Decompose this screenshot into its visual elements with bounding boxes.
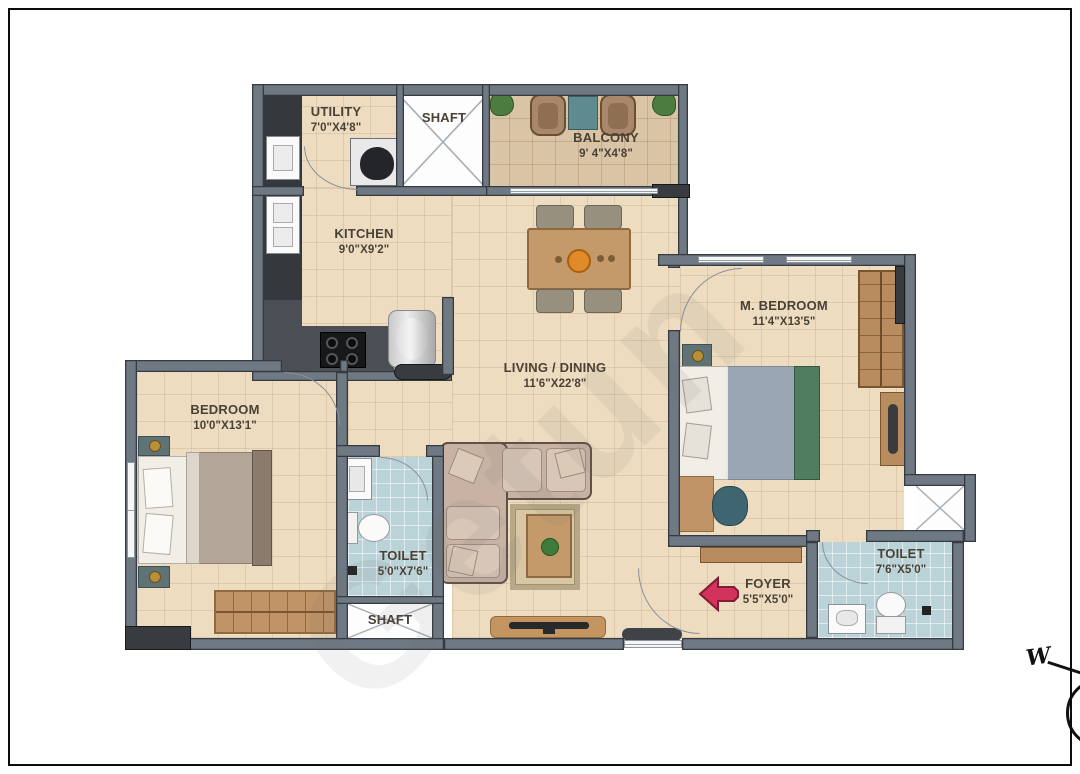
room-name: M. BEDROOM <box>740 298 828 315</box>
wall-segment <box>678 84 688 196</box>
main-door-threshold <box>624 640 682 648</box>
kitchen-sink-icon <box>266 196 300 254</box>
sink-basin <box>273 227 293 247</box>
toilet1-wc-bowl <box>358 514 390 542</box>
room-dims: 10'0"X13'1" <box>190 419 259 434</box>
lamp-icon <box>149 571 161 583</box>
room-name: BEDROOM <box>190 402 259 419</box>
tv-stand <box>543 629 555 634</box>
room-name: SHAFT <box>422 110 466 127</box>
table-decor <box>555 256 562 263</box>
room-dims: 5'5"X5'0" <box>743 593 794 608</box>
toilet1-sink-icon <box>344 458 372 500</box>
sink-basin <box>836 610 858 626</box>
room-dims: 7'6"X5'0" <box>876 563 927 578</box>
wall-segment <box>444 638 624 650</box>
lamp-icon <box>692 350 704 362</box>
room-dims: 9'0"X9'2" <box>334 243 393 258</box>
shaft-top-label: SHAFT <box>422 110 466 127</box>
wardrobe-divider <box>880 272 882 386</box>
shaft-bottom-label: SHAFT <box>368 612 412 629</box>
room-dims: 7'0"X4'8" <box>311 121 362 136</box>
utility-label: UTILITY 7'0"X4'8" <box>311 104 362 136</box>
m-bed-blanket <box>726 366 796 480</box>
pillow <box>682 423 712 460</box>
nightstand <box>138 436 170 456</box>
chair-seat <box>608 103 628 129</box>
pillow <box>142 513 173 555</box>
sink-basin <box>349 466 365 492</box>
m-bed-footboard <box>794 366 820 480</box>
wall-segment <box>482 84 490 188</box>
balcony-table <box>568 96 598 130</box>
pillow <box>143 467 174 509</box>
sofa-cushion <box>502 448 542 492</box>
stool <box>712 486 748 526</box>
floor-drain-icon <box>922 606 931 615</box>
compass-ring <box>1066 678 1080 748</box>
table-decor <box>608 255 615 262</box>
dining-chair <box>536 205 574 229</box>
toilet2-label: TOILET 7'6"X5'0" <box>876 546 927 578</box>
wall-segment <box>432 445 444 645</box>
wall-segment <box>806 530 820 542</box>
dresser-divider <box>216 611 334 613</box>
wall-segment <box>356 186 490 196</box>
dresser <box>214 590 336 634</box>
wall-segment <box>952 542 964 650</box>
window <box>510 188 658 194</box>
utility-sink-icon <box>266 136 300 180</box>
wall-segment <box>252 84 264 381</box>
pillow <box>682 376 712 413</box>
shaft-right-floor <box>916 486 964 530</box>
room-name: FOYER <box>743 576 794 593</box>
wall-segment <box>442 297 454 375</box>
wall-segment <box>340 360 348 372</box>
wall-segment <box>336 596 444 604</box>
wall-segment <box>426 445 444 457</box>
wall-segment <box>336 445 380 457</box>
balcony-chair <box>530 94 566 136</box>
bed-blanket <box>200 452 254 564</box>
wall-segment <box>806 542 818 638</box>
wall-segment <box>904 254 916 486</box>
mirror-icon <box>888 404 898 454</box>
tv-icon <box>509 622 589 629</box>
burner <box>346 337 358 349</box>
window <box>698 256 764 263</box>
fruit-plate-icon <box>567 249 591 273</box>
room-name: KITCHEN <box>334 226 393 243</box>
wall-corner-dark <box>895 266 905 324</box>
sink-basin <box>273 145 293 171</box>
toilet2-sink-icon <box>828 604 866 634</box>
bed-sheet-fold <box>186 452 200 564</box>
wall-segment <box>125 360 282 372</box>
wall-segment <box>668 330 680 547</box>
sofa-cushion <box>446 506 500 540</box>
wall-segment <box>252 186 304 196</box>
balcony-label: BALCONY 9' 4"X4'8" <box>573 130 639 162</box>
window <box>127 462 135 558</box>
dining-table <box>527 228 631 290</box>
burner <box>326 337 338 349</box>
floor-drain-icon <box>348 566 357 575</box>
side-table <box>676 476 714 532</box>
room-name: SHAFT <box>368 612 412 629</box>
room-name: LIVING / DINING <box>504 360 607 377</box>
room-name: TOILET <box>378 548 429 565</box>
toilet1-label: TOILET 5'0"X7'6" <box>378 548 429 580</box>
compass-icon: W <box>1005 630 1080 766</box>
room-dims: 5'0"X7'6" <box>378 565 429 580</box>
tv-console <box>490 616 606 638</box>
dining-chair <box>584 289 622 313</box>
entry-arrow-icon <box>698 576 742 612</box>
wall-segment <box>866 530 964 542</box>
wall-segment <box>252 84 688 96</box>
foyer-label: FOYER 5'5"X5'0" <box>743 576 794 608</box>
room-name: TOILET <box>876 546 927 563</box>
bed-footboard <box>252 450 272 566</box>
wall-segment <box>668 535 818 547</box>
shaft-cross-icon <box>916 486 964 530</box>
toilet2-wc-icon <box>876 616 906 634</box>
wall-segment <box>682 638 964 650</box>
dining-chair <box>584 205 622 229</box>
coffee-table <box>526 514 572 578</box>
sofa-pillow <box>448 546 479 577</box>
toilet2-wc-bowl <box>876 592 906 618</box>
nightstand <box>138 566 170 588</box>
living-dining-label: LIVING / DINING 11'6"X22'8" <box>504 360 607 392</box>
room-dims: 11'6"X22'8" <box>504 377 607 392</box>
nightstand <box>682 344 712 368</box>
fridge-top <box>396 318 428 360</box>
dressing-table <box>880 392 906 466</box>
foyer-console <box>700 547 802 563</box>
dining-chair <box>536 289 574 313</box>
fridge-icon <box>388 310 436 368</box>
room-dims: 9' 4"X4'8" <box>573 147 639 162</box>
wall-segment <box>396 84 404 188</box>
room-name: BALCONY <box>573 130 639 147</box>
wall-corner-dark <box>125 626 191 650</box>
kitchen-label: KITCHEN 9'0"X9'2" <box>334 226 393 258</box>
washing-machine-drum <box>360 147 394 180</box>
chair-seat <box>538 103 558 129</box>
burner <box>326 353 338 365</box>
room-name: UTILITY <box>311 104 362 121</box>
window <box>786 256 852 263</box>
floorplan-canvas: UTILITY 7'0"X4'8" SHAFT BALCONY 9' 4"X4'… <box>0 0 1080 774</box>
plant-icon <box>541 538 559 556</box>
sink-basin <box>273 203 293 223</box>
compass-west-label: W <box>1024 642 1052 671</box>
bedroom-label: BEDROOM 10'0"X13'1" <box>190 402 259 434</box>
wall-segment <box>678 196 688 258</box>
table-decor <box>597 255 604 262</box>
m-bedroom-label: M. BEDROOM 11'4"X13'5" <box>740 298 828 330</box>
wall-segment <box>964 474 976 542</box>
room-dims: 11'4"X13'5" <box>740 315 828 330</box>
lamp-icon <box>149 440 161 452</box>
